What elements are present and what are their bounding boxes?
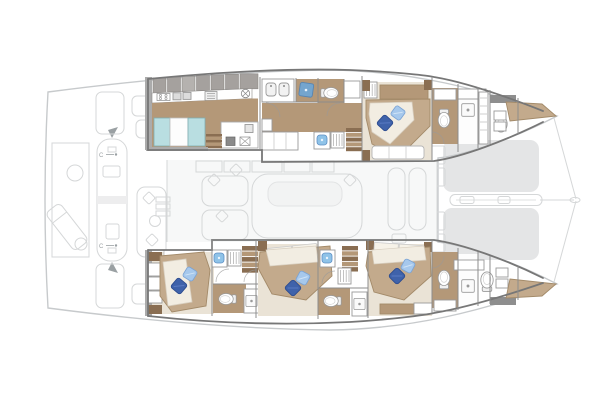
winch-fore-icon: [108, 127, 118, 138]
hull-stairs: [346, 128, 362, 151]
galley-sink-icon: [173, 93, 181, 100]
aft-platform: C C: [45, 127, 127, 273]
washer-icon: [240, 137, 250, 146]
toilet-icon: [438, 109, 450, 127]
cabin-bench: [372, 146, 424, 159]
shower-icon: [246, 295, 257, 306]
bow-locker: [506, 279, 556, 298]
closet-icon: [338, 268, 351, 284]
galley-island: [221, 122, 258, 148]
aft-bath: [212, 246, 259, 313]
port-fwd-baths: [432, 88, 556, 144]
trampoline-port: [443, 140, 539, 192]
galley-stairs: [206, 134, 222, 148]
stove-icon: [157, 94, 170, 101]
cockpit-table: [150, 216, 161, 227]
svg-text:C: C: [99, 244, 104, 250]
galley-fridge-units: [154, 118, 205, 146]
teak-slat-platform: [52, 143, 89, 257]
closet-icon: [228, 250, 241, 266]
sofa-pillow: [143, 192, 156, 205]
galley-sink-icon: [183, 92, 191, 99]
toilet-icon: [321, 87, 338, 98]
cabin-shelf: [380, 304, 414, 314]
island-sink-icon: [245, 125, 253, 133]
floorplan-canvas: C C: [0, 0, 600, 400]
dishwasher-icon: [226, 137, 235, 146]
vanity-sink-icon: [266, 83, 276, 96]
sink-icon: [322, 253, 332, 263]
stbd-fwd-baths: [432, 252, 556, 311]
sofa-pillow: [146, 234, 159, 247]
headboard-shelf: [380, 85, 428, 99]
floorplan-page: C C: [0, 0, 600, 400]
cleat-fore-label: C: [99, 153, 117, 159]
sink-icon: [317, 135, 327, 145]
forestay-line-starboard: [554, 201, 576, 282]
oven-icon: [205, 92, 217, 101]
forestay-line-port: [554, 118, 576, 199]
toilet-icon: [219, 293, 236, 304]
wc-room: [318, 79, 344, 103]
salon-table: [268, 182, 342, 206]
port-mid-baths: [262, 79, 362, 151]
shower-icon: [354, 298, 365, 309]
shower-icon: [462, 104, 475, 117]
galley: [145, 74, 258, 151]
locker-strip: [479, 92, 488, 144]
deck-table: [67, 165, 83, 181]
side-table: [75, 238, 87, 250]
vanity-sink-icon: [279, 83, 289, 96]
bowsprit: [450, 195, 580, 206]
fwd-cabin: [366, 240, 432, 316]
vip-cabin: [362, 80, 432, 161]
sink-icon: [214, 253, 224, 263]
svg-text:C: C: [99, 153, 104, 159]
shower-icon: [462, 280, 475, 293]
shower-room: [296, 79, 318, 102]
extractor-fan-icon: [241, 89, 249, 97]
toilet-icon: [438, 270, 450, 288]
toilet-icon: [324, 295, 341, 306]
vanity-room: [262, 79, 294, 102]
toilet-icon: [481, 272, 493, 291]
corridor-floor: [262, 103, 362, 132]
bow-locker: [506, 102, 556, 121]
closet-icon: [331, 132, 344, 148]
salon: [156, 160, 437, 243]
aft-cabin: [145, 250, 214, 316]
